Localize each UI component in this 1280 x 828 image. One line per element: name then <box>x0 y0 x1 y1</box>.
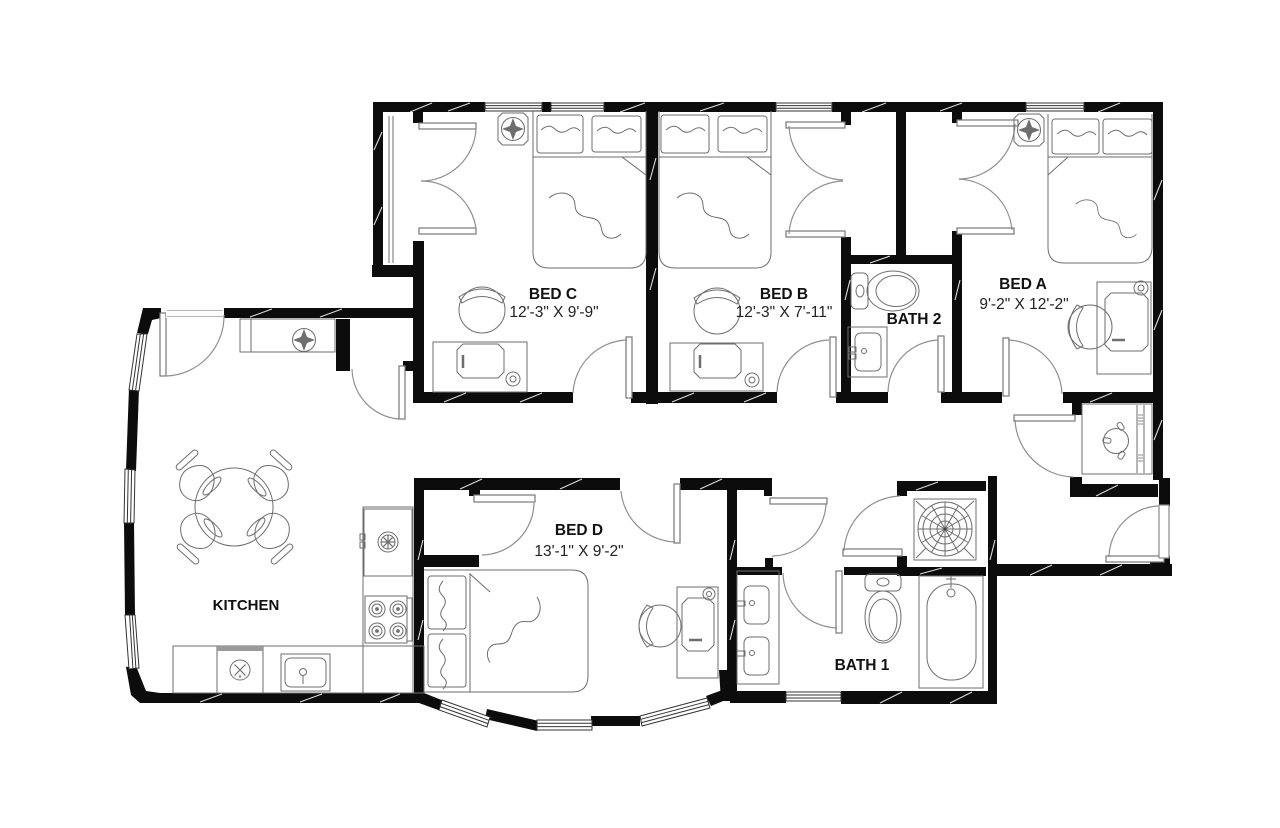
svg-text:9'-2" X 12'-2": 9'-2" X 12'-2" <box>979 296 1068 313</box>
svg-text:BED D: BED D <box>555 522 603 539</box>
svg-text:12'-3" X 9'-9": 12'-3" X 9'-9" <box>509 304 598 321</box>
svg-text:KITCHEN: KITCHEN <box>213 597 280 614</box>
svg-text:12'-3" X 7'-11": 12'-3" X 7'-11" <box>736 304 833 321</box>
svg-text:BED B: BED B <box>760 286 808 303</box>
svg-text:BED A: BED A <box>999 276 1047 293</box>
svg-text:BATH 2: BATH 2 <box>887 311 942 328</box>
svg-text:BED C: BED C <box>529 286 577 303</box>
svg-text:13'-1" X 9'-2": 13'-1" X 9'-2" <box>534 543 623 560</box>
svg-text:BATH 1: BATH 1 <box>835 657 890 674</box>
